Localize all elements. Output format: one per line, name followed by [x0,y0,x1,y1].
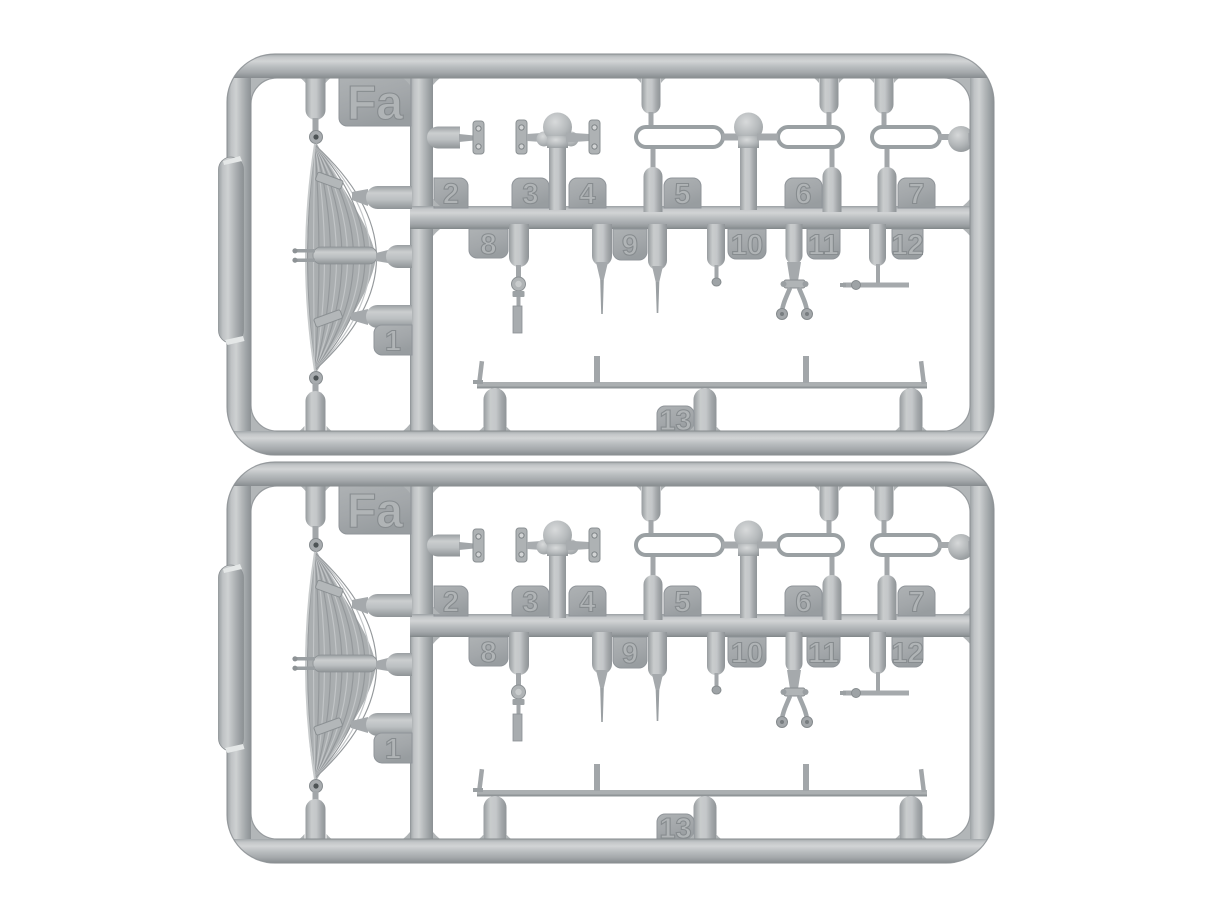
svg-text:7: 7 [908,178,924,210]
svg-text:11: 11 [808,229,839,261]
svg-text:9: 9 [622,230,638,262]
svg-text:10: 10 [731,229,763,261]
svg-text:1: 1 [385,325,401,357]
svg-text:8: 8 [480,229,496,261]
svg-text:4: 4 [579,178,595,210]
svg-text:Fa: Fa [347,77,403,130]
svg-text:3: 3 [522,178,538,210]
svg-text:12: 12 [891,229,923,261]
svg-text:2: 2 [443,178,459,210]
svg-text:6: 6 [795,178,811,210]
svg-text:5: 5 [674,178,690,210]
